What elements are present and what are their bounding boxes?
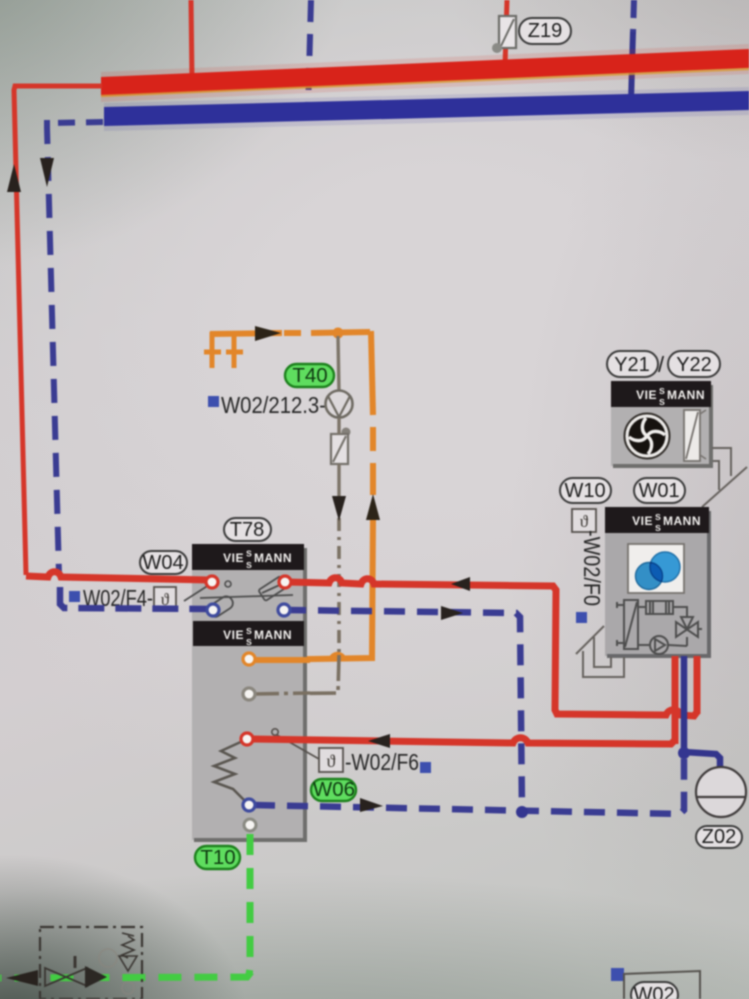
svg-text:Y22: Y22 — [676, 354, 712, 376]
svg-text:W01: W01 — [638, 480, 679, 502]
svg-text:W02: W02 — [633, 984, 674, 999]
svg-text:MANN: MANN — [254, 628, 292, 642]
svg-text:VIE: VIE — [636, 388, 657, 402]
svg-text:S: S — [659, 397, 665, 407]
svg-text:S: S — [246, 637, 252, 647]
svg-text:MANN: MANN — [663, 514, 701, 528]
svg-text:T40: T40 — [292, 364, 327, 387]
svg-text:S: S — [659, 386, 665, 396]
svg-text:/: / — [658, 352, 665, 377]
svg-text:S: S — [246, 549, 252, 559]
svg-text:T78: T78 — [230, 519, 264, 541]
svg-text:S: S — [655, 512, 661, 522]
svg-text:W02/212.3-: W02/212.3- — [221, 392, 326, 418]
svg-text:-W02/F6: -W02/F6 — [345, 749, 419, 775]
svg-text:S: S — [655, 523, 661, 533]
svg-text:W10: W10 — [564, 480, 605, 502]
svg-text:Z19: Z19 — [528, 20, 562, 42]
svg-text:Z02: Z02 — [702, 826, 736, 848]
svg-text:VIE: VIE — [223, 551, 244, 565]
svg-text:S: S — [246, 626, 252, 636]
svg-text:-W02/F0: -W02/F0 — [579, 530, 605, 606]
svg-text:MANN: MANN — [254, 551, 292, 565]
svg-text:ϑ: ϑ — [327, 751, 336, 771]
svg-text:ϑ: ϑ — [580, 512, 589, 531]
svg-text:W06: W06 — [313, 778, 355, 801]
svg-text:S: S — [246, 560, 252, 570]
svg-text:W04: W04 — [142, 552, 183, 574]
svg-text:Y21: Y21 — [614, 354, 650, 376]
svg-text:T10: T10 — [200, 846, 235, 869]
svg-text:VIE: VIE — [223, 628, 244, 642]
svg-text:VIE: VIE — [632, 514, 653, 528]
svg-text:MANN: MANN — [667, 388, 705, 402]
